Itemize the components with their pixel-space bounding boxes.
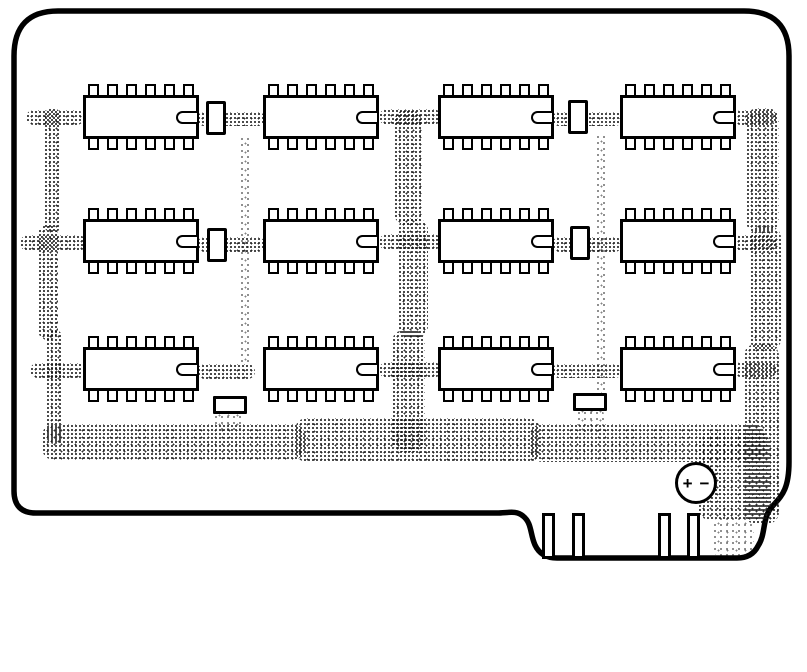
- minus-sign: −: [700, 475, 710, 492]
- decoupling-capacitor: [207, 228, 227, 262]
- dip-chip: [83, 84, 199, 150]
- legend: DIP DECOUPLING CAPACITOR GROUND + − BULK…: [0, 588, 807, 672]
- chip-notch-icon: [356, 235, 377, 248]
- chip-notch-icon: [531, 363, 552, 376]
- chip-notch-icon: [176, 363, 197, 376]
- dip-chip: [620, 208, 736, 274]
- edge-connector-finger: [687, 513, 700, 559]
- edge-connector-finger: [658, 513, 671, 559]
- edge-connector-finger: [542, 513, 555, 559]
- decoupling-capacitor: [206, 101, 226, 135]
- dip-chip: [263, 336, 379, 402]
- dip-chip: [438, 84, 554, 150]
- plus-sign: +: [683, 475, 693, 492]
- dip-chip: [438, 336, 554, 402]
- dip-chip: [83, 336, 199, 402]
- bulk-decoupling-capacitor: +−: [675, 462, 717, 504]
- edge-connector-finger: [572, 513, 585, 559]
- decoupling-capacitor: [568, 100, 588, 134]
- chip-notch-icon: [176, 235, 197, 248]
- dip-chip: [83, 208, 199, 274]
- dip-chip: [263, 208, 379, 274]
- pcb-diagram: +− DIP: [0, 0, 807, 672]
- component-layer: +−: [0, 0, 807, 672]
- chip-notch-icon: [531, 235, 552, 248]
- chip-notch-icon: [176, 111, 197, 124]
- decoupling-capacitor: [570, 226, 590, 260]
- chip-notch-icon: [356, 363, 377, 376]
- chip-notch-icon: [531, 111, 552, 124]
- chip-notch-icon: [713, 111, 734, 124]
- chip-notch-icon: [713, 363, 734, 376]
- dip-chip: [620, 84, 736, 150]
- dip-chip: [438, 208, 554, 274]
- decoupling-capacitor: [573, 393, 607, 411]
- dip-chip: [263, 84, 379, 150]
- chip-notch-icon: [356, 111, 377, 124]
- dip-chip: [620, 336, 736, 402]
- chip-notch-icon: [713, 235, 734, 248]
- decoupling-capacitor: [213, 396, 247, 414]
